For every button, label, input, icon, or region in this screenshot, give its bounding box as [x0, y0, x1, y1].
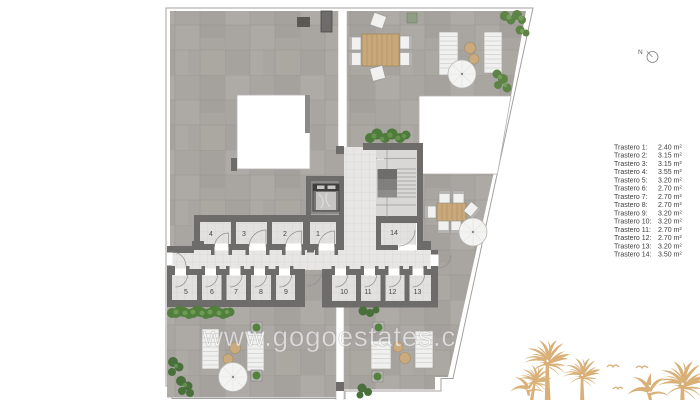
svg-text:2.70 m2: 2.70 m2 — [658, 185, 682, 193]
svg-text:6: 6 — [210, 289, 214, 296]
svg-text:2.70 m2: 2.70 m2 — [658, 193, 682, 201]
svg-text:3.20 m2: 3.20 m2 — [658, 209, 682, 217]
svg-text:Trastero 2:: Trastero 2: — [614, 153, 648, 160]
svg-text:3.15 m2: 3.15 m2 — [658, 152, 682, 160]
svg-text:3.20 m2: 3.20 m2 — [658, 218, 682, 226]
svg-text:2.70 m2: 2.70 m2 — [658, 234, 682, 242]
svg-text:13: 13 — [414, 289, 422, 296]
svg-text:2.70 m2: 2.70 m2 — [658, 201, 682, 209]
svg-text:Trastero 5:: Trastero 5: — [614, 177, 648, 184]
svg-text:1: 1 — [316, 231, 320, 238]
svg-text:3: 3 — [242, 231, 246, 238]
svg-text:3.20 m2: 3.20 m2 — [658, 242, 682, 250]
svg-text:Trastero 1:: Trastero 1: — [614, 145, 648, 152]
svg-text:N: N — [638, 49, 643, 56]
svg-text:11: 11 — [364, 289, 371, 296]
svg-text:4: 4 — [209, 231, 213, 238]
svg-text:3.15 m2: 3.15 m2 — [658, 160, 682, 168]
svg-text:Trastero 9:: Trastero 9: — [614, 210, 648, 217]
svg-text:Trastero 7:: Trastero 7: — [614, 194, 648, 201]
svg-text:Trastero 11:: Trastero 11: — [614, 227, 651, 234]
svg-text:Trastero 14:: Trastero 14: — [614, 252, 652, 259]
svg-text:Trastero 3:: Trastero 3: — [614, 161, 648, 168]
svg-text:Trastero 12:: Trastero 12: — [614, 235, 652, 242]
svg-text:Trastero 13:: Trastero 13: — [614, 243, 652, 250]
svg-text:9: 9 — [284, 289, 288, 296]
svg-text:7: 7 — [234, 289, 238, 296]
svg-text:3.50 m2: 3.50 m2 — [658, 251, 682, 259]
svg-text:14: 14 — [390, 230, 398, 237]
svg-text:12: 12 — [389, 289, 397, 296]
svg-text:Trastero 4:: Trastero 4: — [614, 169, 648, 176]
svg-text:Trastero 6:: Trastero 6: — [614, 186, 648, 193]
svg-text:10: 10 — [340, 289, 348, 296]
svg-text:Trastero 8:: Trastero 8: — [614, 202, 648, 209]
svg-text:2.70 m2: 2.70 m2 — [658, 226, 682, 234]
svg-text:2: 2 — [283, 231, 287, 238]
svg-text:Trastero 10:: Trastero 10: — [614, 219, 652, 226]
svg-text:2.40 m2: 2.40 m2 — [658, 144, 682, 152]
svg-text:3.20 m2: 3.20 m2 — [658, 176, 682, 184]
svg-text:8: 8 — [259, 289, 263, 296]
svg-text:www.gogoestates.c: www.gogoestates.c — [202, 321, 456, 352]
svg-text:5: 5 — [184, 289, 188, 296]
svg-text:3.55 m2: 3.55 m2 — [658, 168, 682, 176]
